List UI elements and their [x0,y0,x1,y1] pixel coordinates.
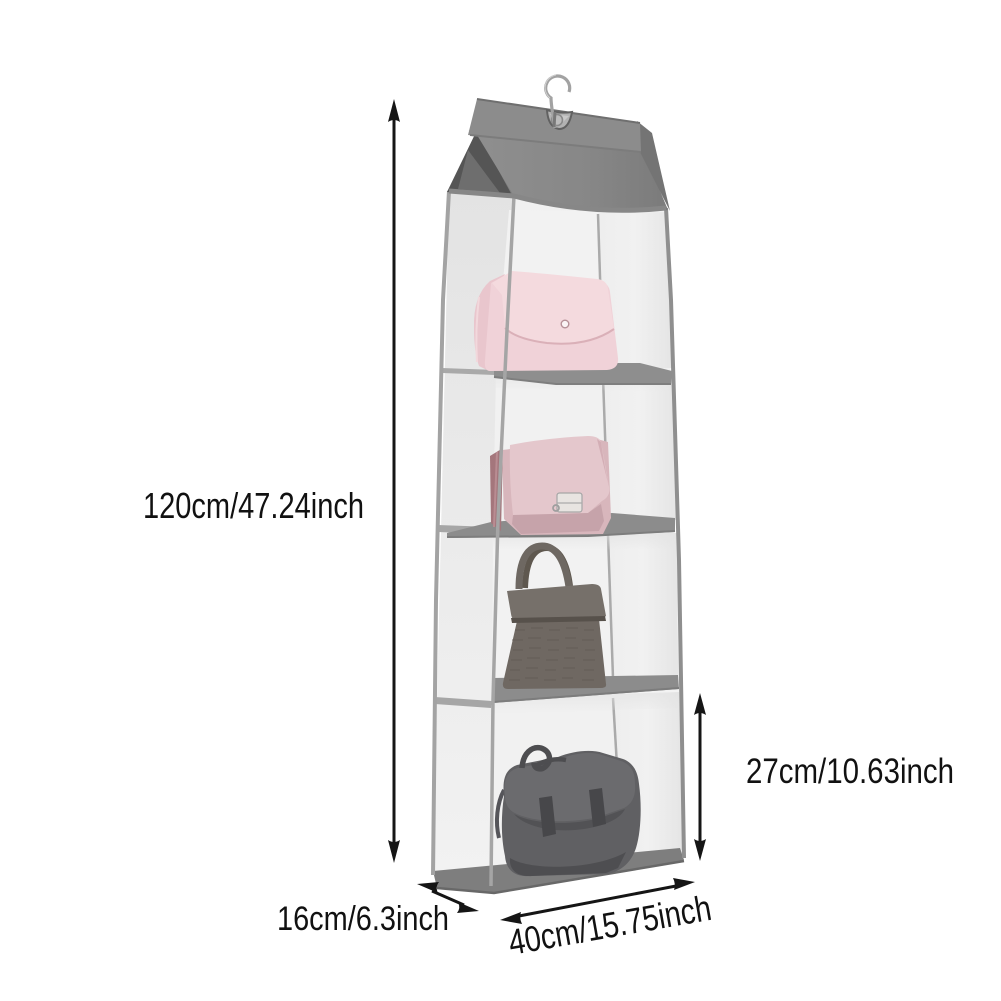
svg-text:27cm/10.63inch: 27cm/10.63inch [746,752,954,791]
svg-text:16cm/6.3inch: 16cm/6.3inch [277,900,449,938]
svg-text:120cm/47.24inch: 120cm/47.24inch [143,485,364,526]
